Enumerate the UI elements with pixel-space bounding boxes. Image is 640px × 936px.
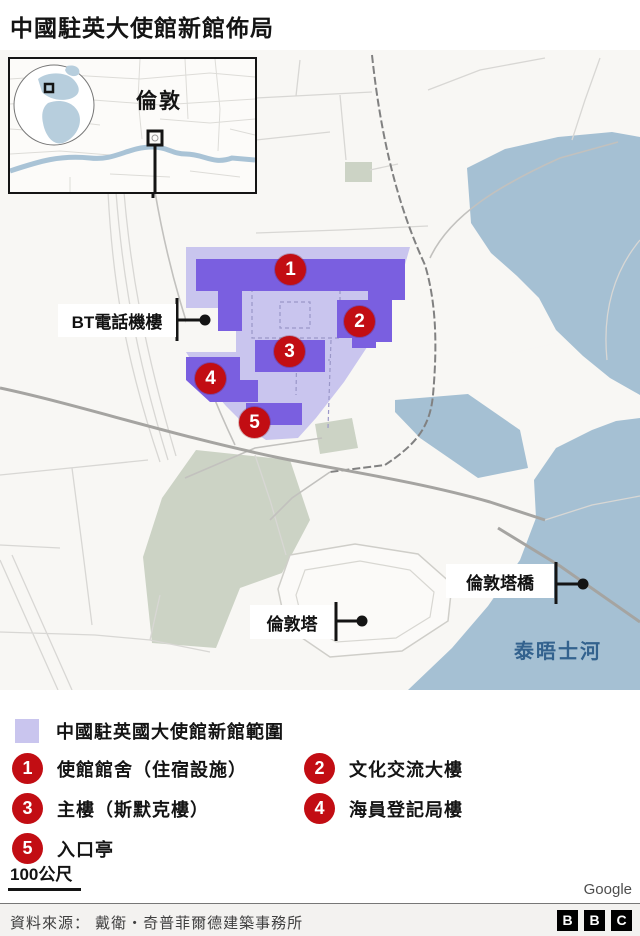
map-attribution: Google <box>584 881 632 898</box>
legend-marker-3: 3 <box>12 793 43 824</box>
legend: 中國駐英國大使館新館範圍 1 使館館舍（住宿設施） 2 文化交流大樓 3 主樓（… <box>0 690 640 873</box>
label-bt-exchange: BT電話機樓 <box>58 304 176 337</box>
inset-city-label: 倫敦 <box>136 85 182 115</box>
legend-area-row: 中國駐英國大使館新館範圍 <box>12 718 640 744</box>
legend-marker-4: 4 <box>304 793 335 824</box>
site-area-swatch <box>15 719 39 743</box>
source-credit: 資料來源： 戴衛・奇普菲爾德建築事務所 <box>10 912 303 933</box>
inset-canvas <box>10 59 255 192</box>
infographic: 中國駐英大使館新館佈局 <box>0 0 640 936</box>
label-tower-of-london: 倫敦塔 <box>250 605 334 639</box>
map-marker-2: 2 <box>344 306 375 337</box>
map-marker-4: 4 <box>195 363 226 394</box>
legend-item-4: 4 海員登記局樓 <box>304 793 463 824</box>
inset-site-marker <box>148 131 162 145</box>
scale-bar <box>8 888 81 891</box>
legend-item-3: 3 主樓（斯默克樓） <box>12 793 304 824</box>
globe-icon <box>14 65 94 145</box>
legend-marker-1: 1 <box>12 753 43 784</box>
page-title: 中國駐英大使館新館佈局 <box>10 9 274 43</box>
label-river-thames: 泰晤士河 <box>514 635 618 664</box>
legend-item-2: 2 文化交流大樓 <box>304 753 463 784</box>
map-marker-5: 5 <box>239 407 270 438</box>
legend-marker-2: 2 <box>304 753 335 784</box>
map-marker-1: 1 <box>275 254 306 285</box>
bbc-logo: B B C <box>557 910 632 931</box>
map-marker-3: 3 <box>274 336 305 367</box>
label-tower-bridge: 倫敦塔橋 <box>446 564 554 598</box>
site-area-label: 中國駐英國大使館新館範圍 <box>56 718 284 744</box>
legend-item-1: 1 使館館舍（住宿設施） <box>12 753 304 784</box>
scale-label: 100公尺 <box>10 860 72 885</box>
main-map: 1 2 3 4 5 BT電話機樓 倫敦塔橋 倫敦塔 泰晤士河 <box>0 50 640 690</box>
inset-locator-map: 倫敦 <box>8 57 257 194</box>
footer: 資料來源： 戴衛・奇普菲爾德建築事務所 B B C <box>0 903 640 936</box>
